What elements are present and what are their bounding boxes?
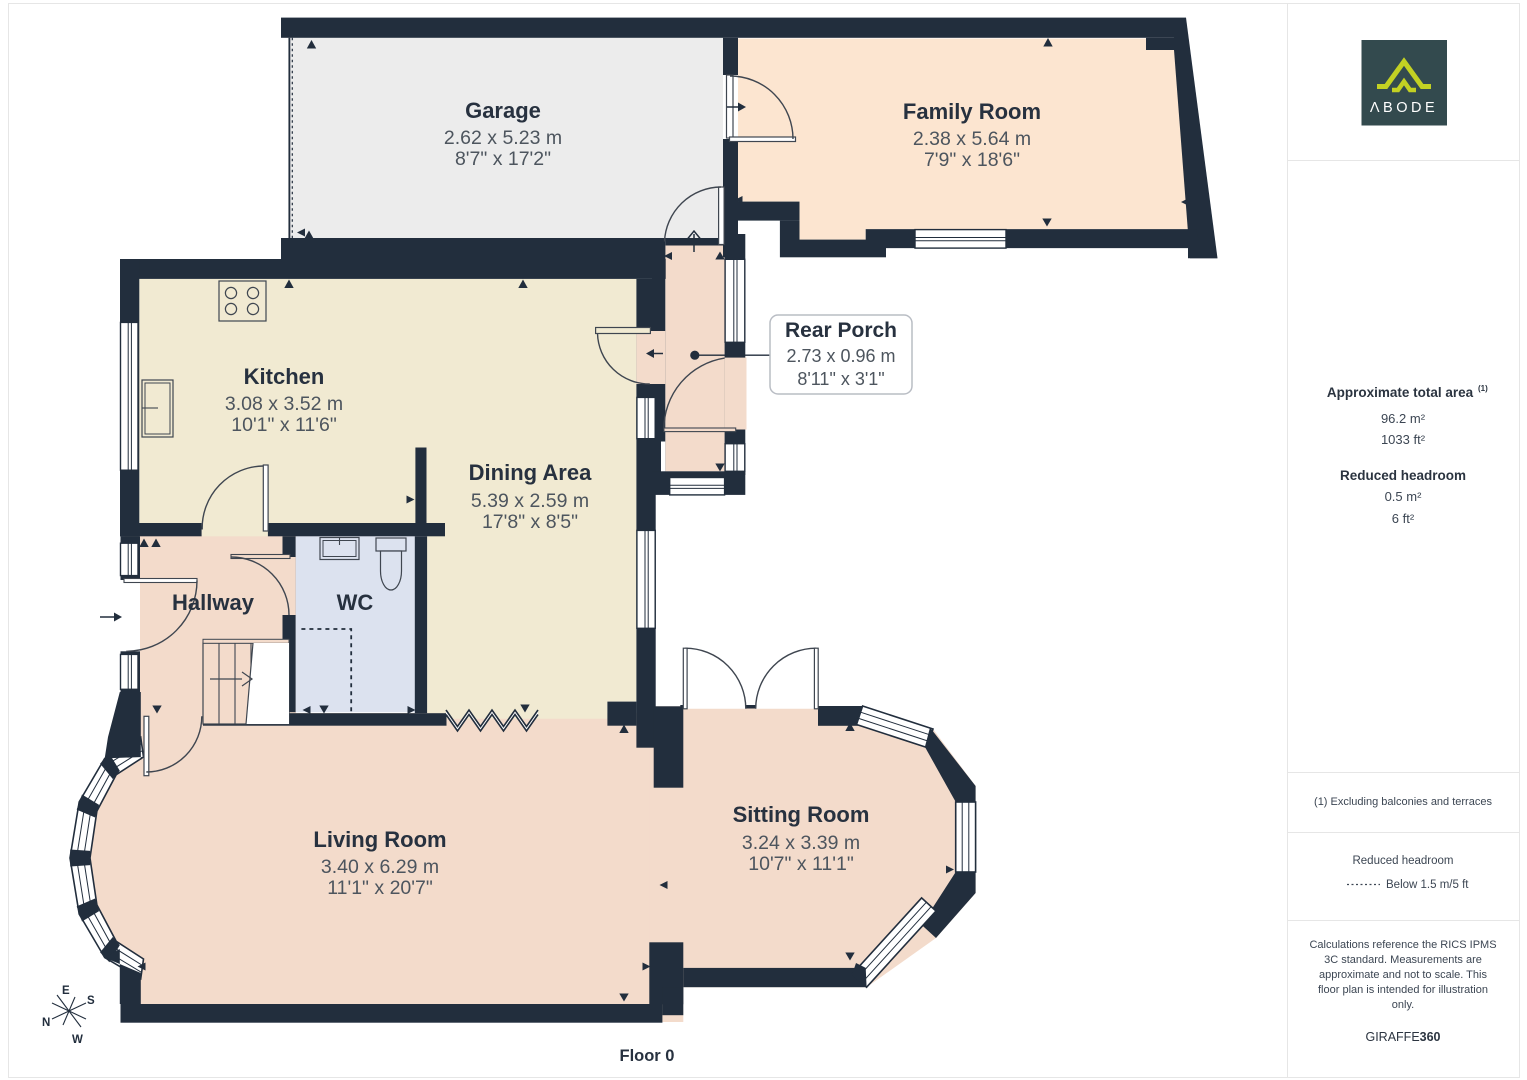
svg-text:1033 ft²: 1033 ft² — [1381, 432, 1426, 447]
svg-text:approximate and not to scale.: approximate and not to scale. This — [1319, 969, 1487, 981]
svg-text:N: N — [42, 1017, 50, 1029]
svg-text:6 ft²: 6 ft² — [1392, 511, 1415, 526]
svg-text:S: S — [87, 995, 95, 1007]
svg-text:WC: WC — [337, 590, 374, 615]
svg-text:W: W — [72, 1034, 83, 1046]
svg-text:3.24 x 3.39 m: 3.24 x 3.39 m — [742, 832, 860, 854]
svg-text:(1) Excluding balconies and te: (1) Excluding balconies and terraces — [1314, 796, 1492, 808]
svg-text:3.40 x 6.29 m: 3.40 x 6.29 m — [321, 856, 439, 878]
svg-text:2.38 x 5.64 m: 2.38 x 5.64 m — [913, 128, 1031, 150]
svg-text:5.39 x 2.59 m: 5.39 x 2.59 m — [471, 490, 589, 512]
svg-text:Sitting Room: Sitting Room — [733, 802, 870, 827]
svg-text:GIRAFFE360: GIRAFFE360 — [1365, 1030, 1440, 1044]
svg-text:Kitchen: Kitchen — [244, 364, 325, 389]
svg-text:Reduced headroom: Reduced headroom — [1340, 468, 1466, 483]
svg-text:8'7" x 17'2": 8'7" x 17'2" — [455, 148, 551, 170]
svg-text:Family Room: Family Room — [903, 99, 1041, 124]
svg-text:(1): (1) — [1478, 384, 1488, 393]
svg-text:2.73 x 0.96 m: 2.73 x 0.96 m — [786, 346, 895, 366]
svg-text:Hallway: Hallway — [172, 590, 255, 615]
svg-text:2.62 x 5.23 m: 2.62 x 5.23 m — [444, 127, 562, 149]
svg-text:96.2 m²: 96.2 m² — [1381, 411, 1426, 426]
svg-text:Living Room: Living Room — [313, 827, 446, 852]
svg-text:Below 1.5 m/5 ft: Below 1.5 m/5 ft — [1386, 879, 1469, 891]
svg-text:floor plan is intended for ill: floor plan is intended for illustration — [1318, 984, 1488, 996]
svg-text:17'8" x 8'5": 17'8" x 8'5" — [482, 511, 578, 533]
svg-text:3.08 x 3.52 m: 3.08 x 3.52 m — [225, 393, 343, 415]
svg-text:Reduced headroom: Reduced headroom — [1352, 855, 1453, 867]
svg-text:8'11" x 3'1": 8'11" x 3'1" — [797, 369, 884, 389]
svg-text:10'7" x 11'1": 10'7" x 11'1" — [748, 853, 854, 875]
svg-text:E: E — [62, 985, 70, 997]
svg-text:Approximate total area: Approximate total area — [1327, 385, 1474, 400]
svg-text:0.5 m²: 0.5 m² — [1385, 489, 1423, 504]
svg-text:Dining Area: Dining Area — [469, 460, 592, 485]
svg-text:Calculations reference the RIC: Calculations reference the RICS IPMS — [1309, 939, 1496, 951]
svg-text:Rear Porch: Rear Porch — [785, 319, 897, 342]
svg-text:11'1" x 20'7": 11'1" x 20'7" — [327, 877, 433, 899]
svg-text:only.: only. — [1392, 999, 1414, 1011]
svg-text:10'1" x 11'6": 10'1" x 11'6" — [231, 414, 337, 436]
svg-text:Garage: Garage — [465, 98, 541, 123]
svg-text:3C standard. Measurements are: 3C standard. Measurements are — [1324, 954, 1482, 966]
svg-text:7'9" x 18'6": 7'9" x 18'6" — [924, 149, 1020, 171]
svg-text:Floor 0: Floor 0 — [619, 1047, 674, 1065]
svg-text:ΛBODE: ΛBODE — [1370, 100, 1438, 116]
